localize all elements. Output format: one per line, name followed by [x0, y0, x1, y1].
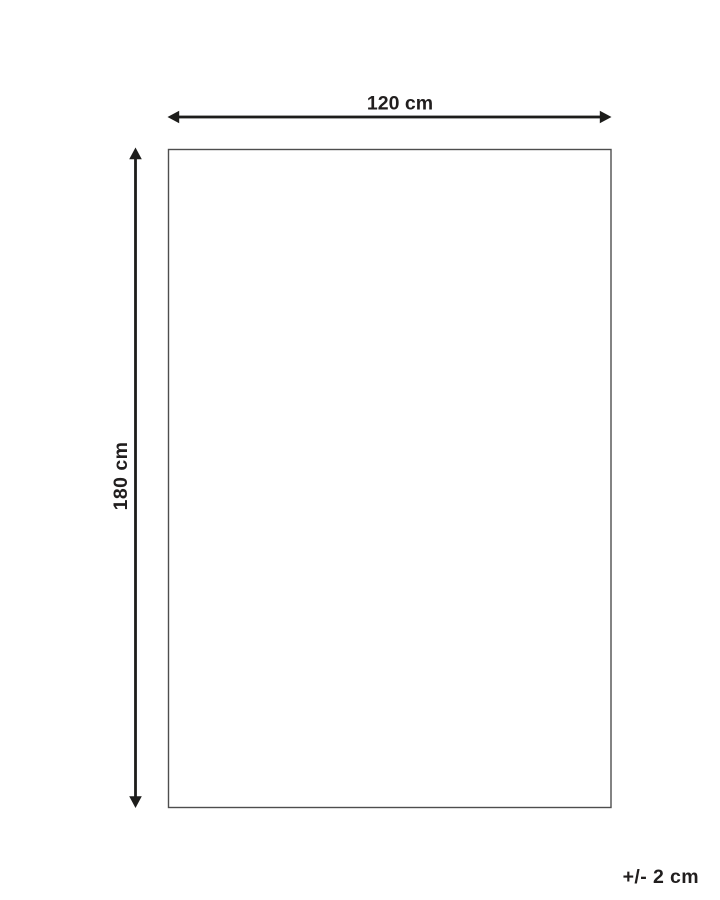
svg-text:180 cm: 180 cm	[110, 442, 132, 511]
svg-text:120 cm: 120 cm	[367, 93, 433, 115]
svg-text:+/- 2 cm: +/- 2 cm	[623, 866, 699, 888]
